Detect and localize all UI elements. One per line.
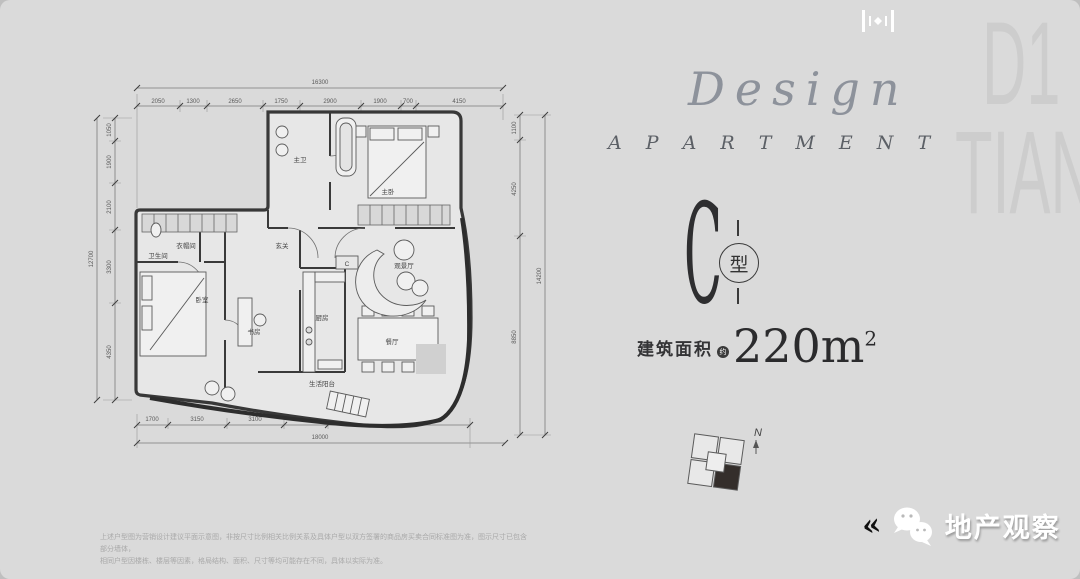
disclaimer-line: 上述户型图为营销设计建议平面示意图，非按尺寸比例相关比例关系及具体户型以双方签署… (100, 532, 530, 556)
dimension-label: 1300 (186, 99, 200, 105)
room-label: 主卧 (382, 187, 396, 196)
room-label: 厨房 (316, 313, 329, 322)
dimension-label: 1700 (145, 417, 159, 423)
north-label: N (754, 427, 762, 439)
dimension-label: 1900 (373, 99, 387, 105)
room-label: 衣帽间 (176, 241, 196, 250)
soundwave-logo-icon (858, 6, 902, 36)
basin (276, 144, 288, 156)
room-label: 卧室 (196, 295, 210, 304)
room-label: 餐厅 (386, 337, 400, 346)
room-label: 观景厅 (394, 262, 414, 270)
dimension-label: 12700 (89, 250, 95, 267)
area-approx-badge: 约 (717, 346, 729, 358)
dimension-label: 1750 (274, 99, 288, 105)
dimension-label: 1050 (107, 123, 113, 137)
type-tick-bottom (737, 288, 739, 304)
dimension-label: 1900 (107, 155, 113, 169)
rug (416, 344, 446, 374)
dimension-label: 4350 (107, 345, 113, 359)
room-label: 主卫 (294, 155, 308, 164)
dimension-label: 2100 (107, 200, 113, 214)
area-label: 建筑面积 (637, 335, 713, 367)
brand-row: « 地产观察 (862, 498, 1061, 552)
poster-canvas: 16300 2050 1300 2650 1750 2900 1900 700 … (0, 0, 1080, 579)
disclaimer-line: 相同户型因楼栋、楼层等因素，格局结构、面积、尺寸等均可能存在不同，具体以实际为准… (100, 556, 530, 568)
dimension-label: 700 (403, 99, 414, 105)
toilet (151, 223, 161, 237)
chair (254, 314, 266, 326)
dimension-label: 1100 (512, 121, 518, 135)
brand-name: 地产观察 (945, 506, 1061, 545)
unit-letter: C (684, 186, 722, 324)
desk (238, 298, 252, 346)
watermark-line: TIANF (955, 119, 1080, 228)
room-label: 玄关 (276, 241, 290, 250)
dimension-label: 8850 (512, 330, 518, 344)
disclaimer-text: 上述户型图为营销设计建议平面示意图，非按尺寸比例相关比例关系及具体户型以双方签署… (100, 532, 530, 568)
armchair (394, 240, 414, 260)
room-label: 卫生间 (148, 251, 168, 260)
basin (276, 126, 288, 138)
dimension-label: 2650 (228, 99, 242, 105)
wechat-icon (883, 498, 939, 552)
type-circle: 型 (719, 243, 759, 283)
room-label: 书房 (248, 327, 261, 336)
dimension-label: 14200 (537, 267, 543, 284)
type-tick-top (737, 220, 739, 236)
watermark-line: D1 (982, 10, 1080, 119)
dimension-label: 3100 (248, 417, 262, 423)
kitchen-counter (303, 272, 315, 372)
chevrons-mark: « (859, 506, 884, 544)
background-watermark: D1 TIANF (955, 10, 1080, 227)
apartment-caps-title: A P A R T M E N T (608, 132, 939, 154)
area-row: 建筑面积 约 220m2 (637, 326, 877, 367)
area-value: 220m2 (733, 326, 877, 367)
type-char: 型 (729, 250, 748, 277)
room-label: 生活阳台 (309, 379, 335, 388)
dimension-label: 4150 (452, 99, 466, 105)
floor-plan: 16300 2050 1300 2650 1750 2900 1900 700 … (0, 0, 1080, 579)
north-arrow-icon (753, 440, 759, 454)
dimension-label: 18000 (312, 435, 329, 441)
design-script-title: Design (688, 62, 910, 116)
dimension-label: 16300 (312, 80, 329, 86)
dimension-label: 2900 (323, 99, 337, 105)
dimension-label: 3150 (190, 417, 204, 423)
unit-locator-diagram: N (668, 410, 778, 510)
dimension-label: 4250 (512, 182, 518, 196)
dimension-label: 2050 (151, 99, 165, 105)
column-marker-label: C (345, 261, 350, 268)
dimension-label: 3300 (107, 260, 113, 274)
